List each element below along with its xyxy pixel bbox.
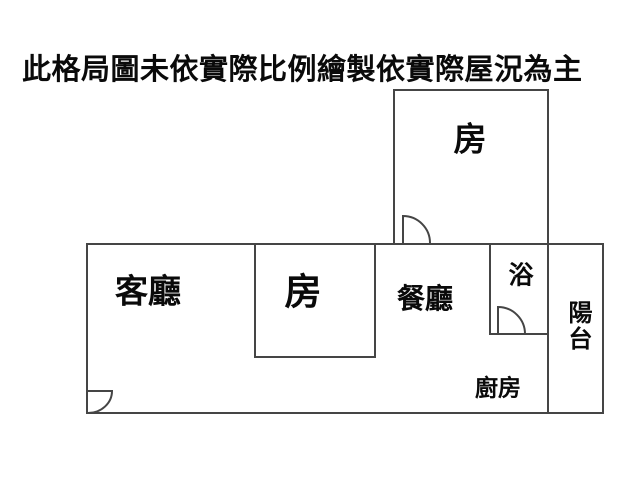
label-bathroom: 浴 [508,263,533,288]
label-balcony: 陽台 [566,300,590,352]
label-dining-room: 餐廳 [397,285,453,313]
label-bedroom-top: 房 [454,123,487,156]
door-arc-bathroom [498,307,525,334]
label-kitchen: 廚房 [475,378,521,401]
label-living-room: 客廳 [115,275,181,308]
floorplan-page: 此格局圖未依實際比例繪製依實際屋況為主 客廳 房 房 餐廳 浴 [0,0,640,480]
door-arc-entry [87,391,112,413]
label-bedroom-middle: 房 [285,274,322,311]
door-arc-bedroom-top [403,216,430,244]
floorplan-drawing [0,0,640,480]
